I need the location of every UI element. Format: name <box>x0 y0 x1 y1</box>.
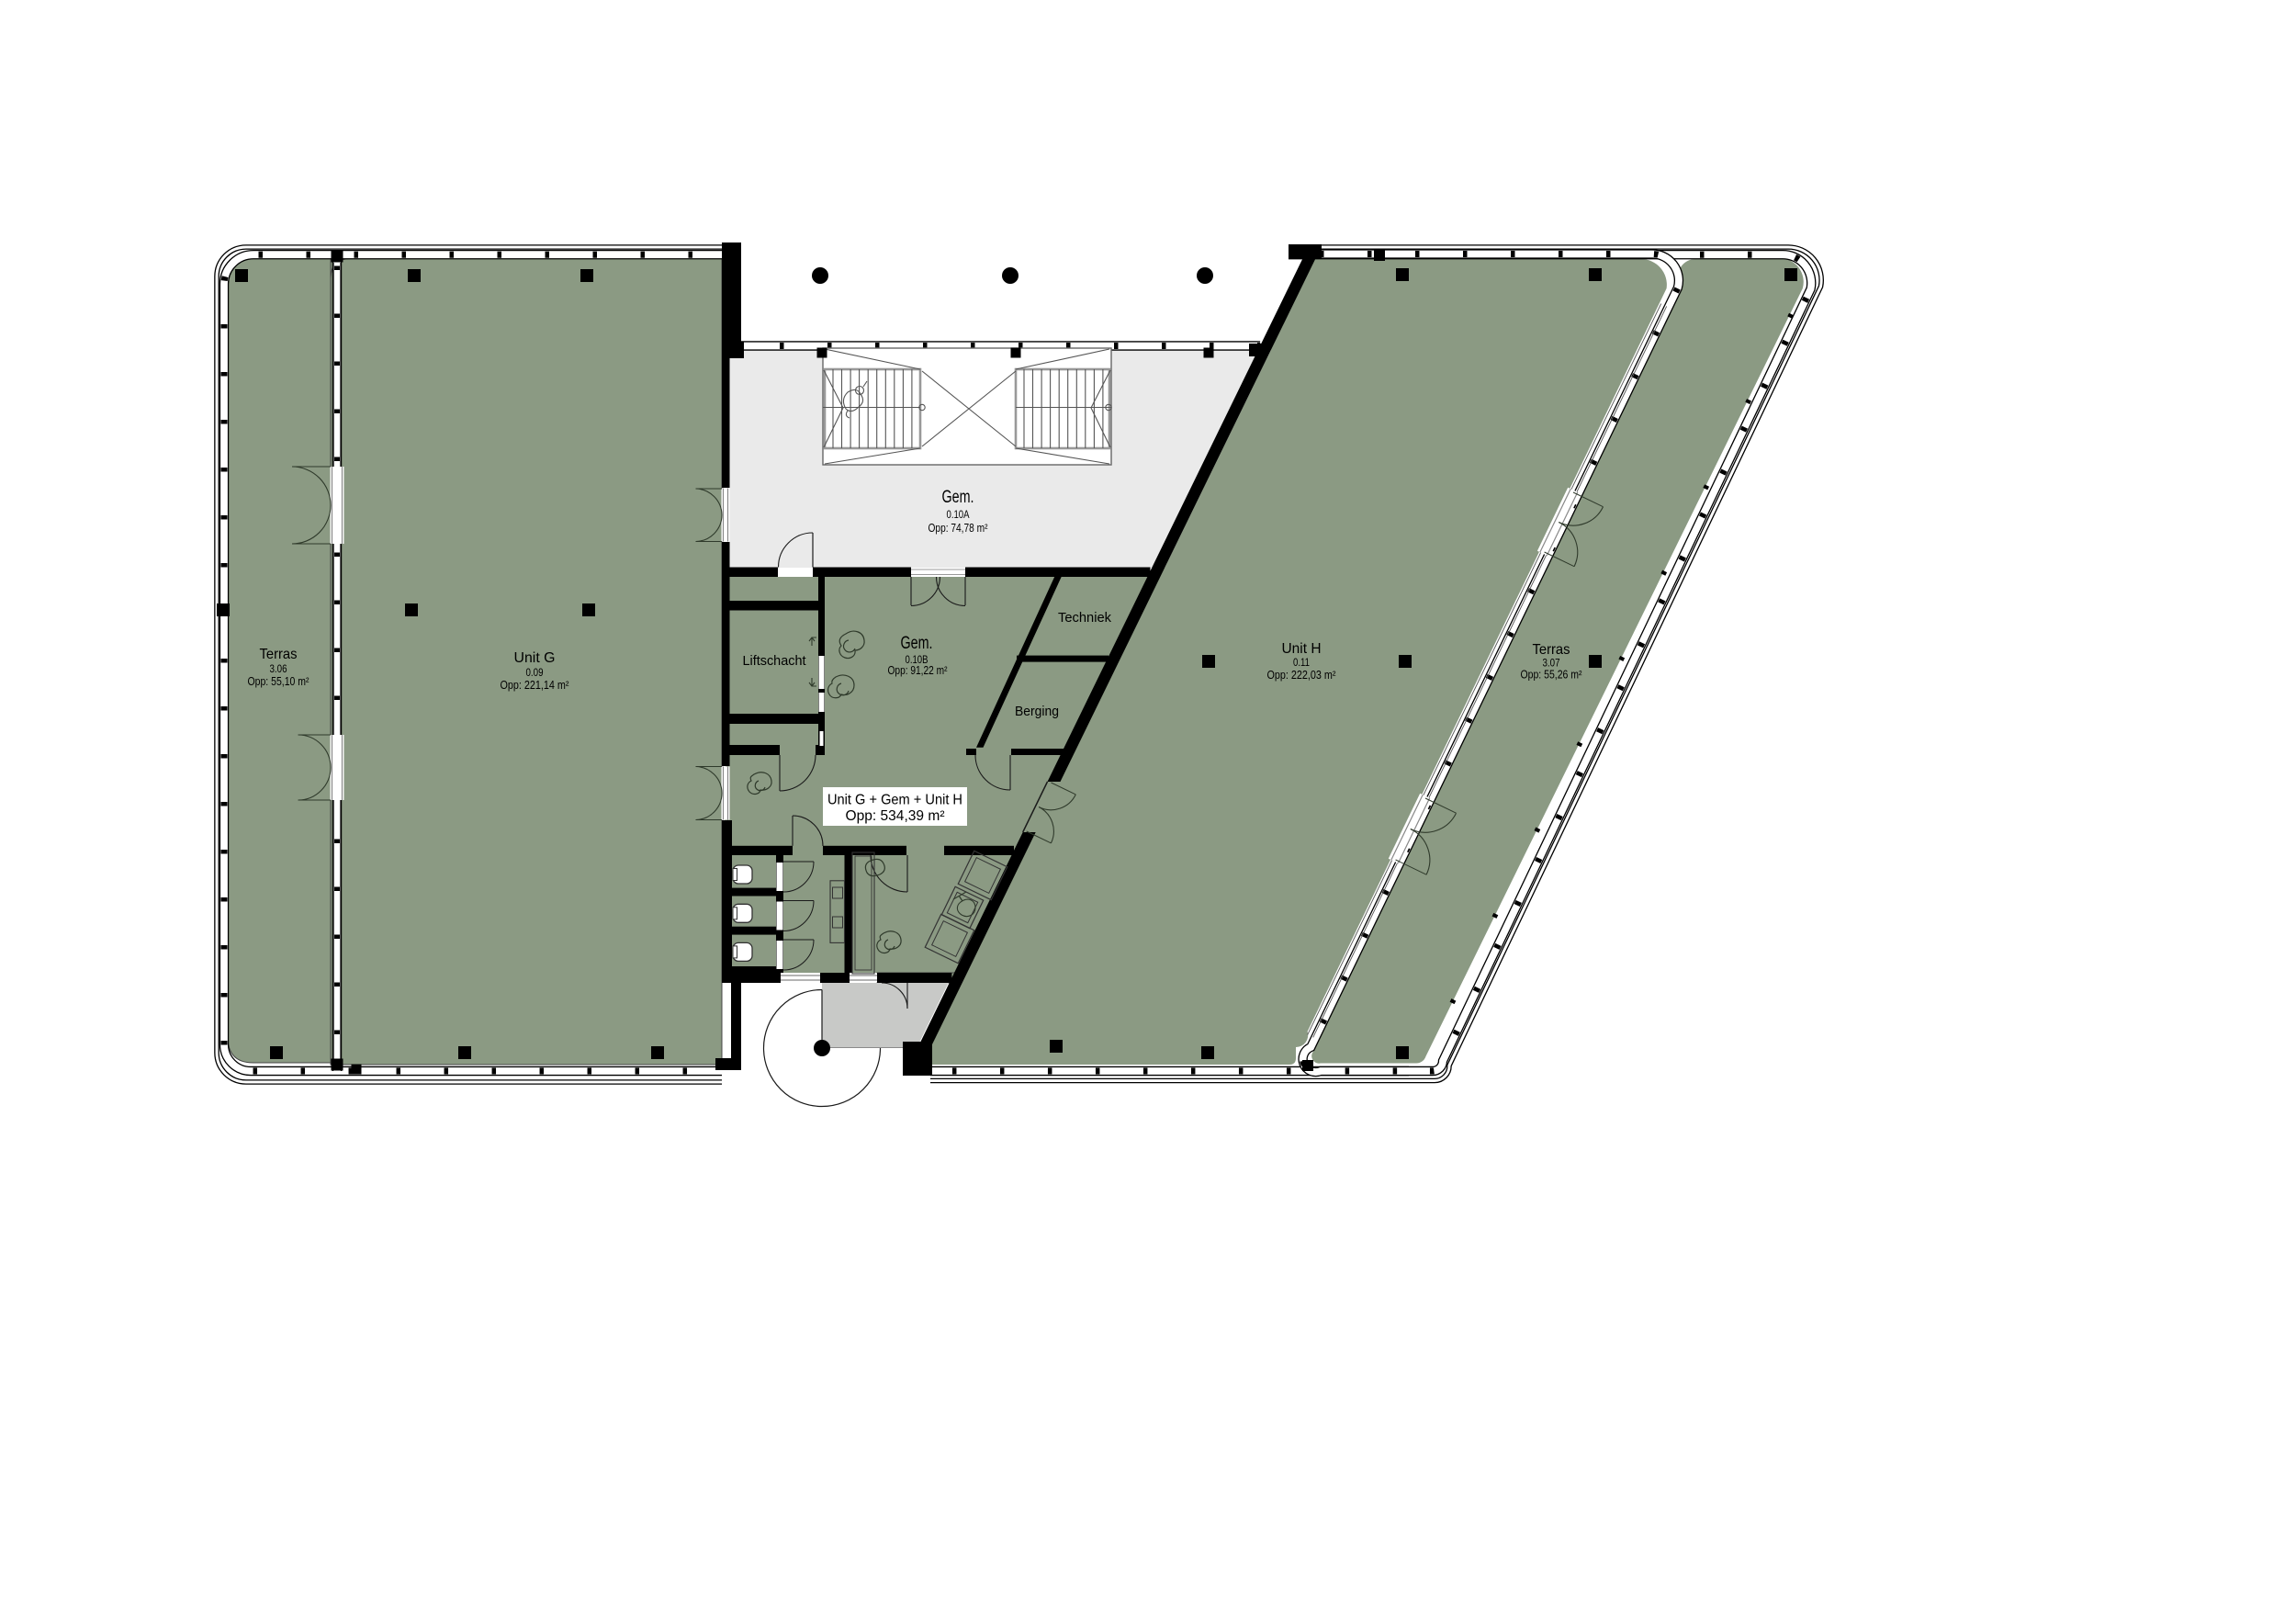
svg-text:Opp: 221,14 m²: Opp: 221,14 m² <box>501 678 570 692</box>
svg-text:Liftschacht: Liftschacht <box>743 653 807 669</box>
svg-text:Techniek: Techniek <box>1058 610 1111 626</box>
svg-text:Unit H: Unit H <box>1282 641 1322 657</box>
svg-text:0.10A: 0.10A <box>947 510 970 521</box>
svg-text:Terras: Terras <box>260 647 298 662</box>
svg-text:Opp: 222,03 m²: Opp: 222,03 m² <box>1267 668 1337 682</box>
svg-text:Unit G: Unit G <box>514 650 556 666</box>
svg-text:Opp: 55,26 m²: Opp: 55,26 m² <box>1521 668 1583 682</box>
svg-text:Unit G + Gem + Unit H: Unit G + Gem + Unit H <box>827 793 962 808</box>
svg-text:Gem.: Gem. <box>901 634 933 653</box>
svg-text:Opp: 91,22 m²: Opp: 91,22 m² <box>888 663 949 677</box>
svg-text:Opp: 74,78 m²: Opp: 74,78 m² <box>929 521 989 535</box>
svg-text:Terras: Terras <box>1533 642 1570 658</box>
svg-text:Opp: 55,10 m²: Opp: 55,10 m² <box>248 674 310 688</box>
svg-text:Berging: Berging <box>1015 704 1059 719</box>
svg-text:Gem.: Gem. <box>942 488 974 507</box>
svg-text:Opp: 534,39 m²: Opp: 534,39 m² <box>846 808 945 824</box>
